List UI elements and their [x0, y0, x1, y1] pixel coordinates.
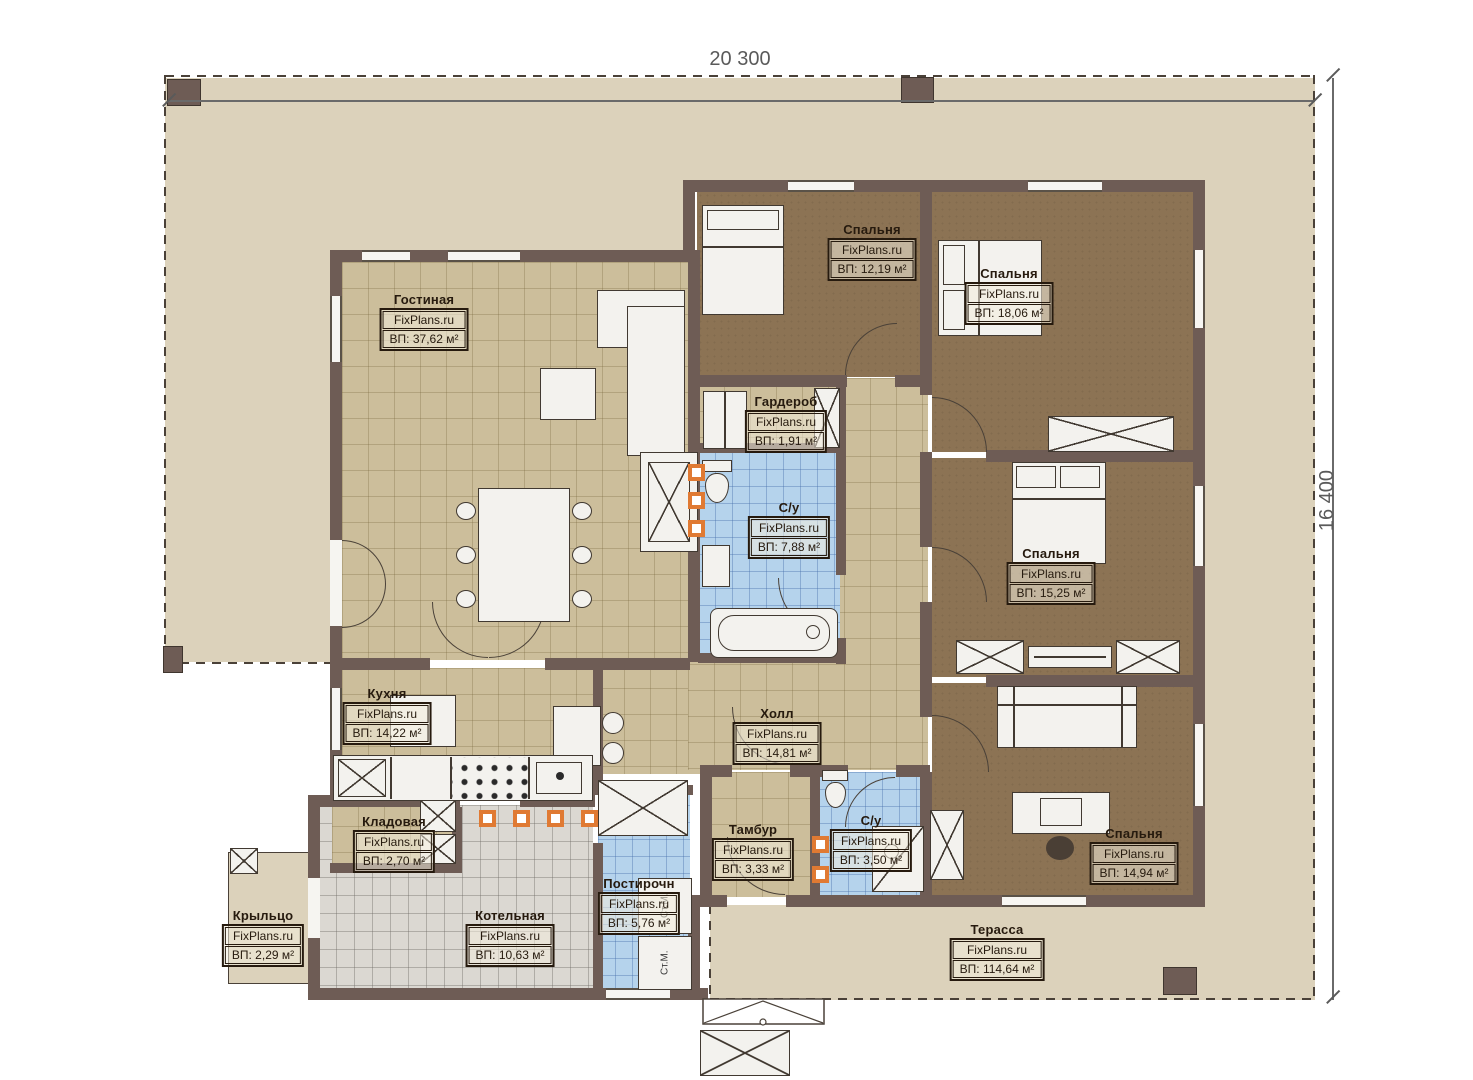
watermark: FixPlans.ru	[968, 285, 1051, 303]
wall-segment	[700, 765, 732, 777]
terrace-border	[165, 75, 1315, 77]
sofa-arm-line	[1013, 686, 1015, 748]
room-name: Гостиная	[394, 292, 454, 307]
room-name: Кухня	[368, 686, 407, 701]
room-name: Постирочн	[603, 876, 674, 891]
chair	[602, 712, 624, 734]
counter-divider	[390, 757, 392, 799]
bed-line	[702, 246, 784, 248]
room-info-box: FixPlans.ru ВП: 3,33 м²	[712, 838, 794, 881]
room-area: ВП: 14,81 м²	[736, 744, 819, 762]
stove	[452, 757, 528, 799]
room-label-spalnya-2: Спальня FixPlans.ru ВП: 18,06 м²	[965, 266, 1054, 325]
room-info-box: FixPlans.ru ВП: 14,94 м²	[1090, 842, 1179, 885]
sofa-back-line	[997, 704, 1137, 706]
wall-marker	[688, 492, 705, 509]
wall-segment	[700, 895, 727, 907]
terrace-area-above-living	[330, 180, 695, 252]
room-info-box: FixPlans.ru ВП: 14,22 м²	[343, 702, 432, 745]
entry-steps	[702, 998, 826, 1026]
bed-pillow	[943, 290, 965, 330]
sofa	[997, 686, 1137, 748]
room-name: Спальня	[843, 222, 901, 237]
washing-machine-label: Ст.М.	[639, 937, 691, 989]
terrace-post	[1163, 967, 1197, 995]
wall-marker	[513, 810, 530, 827]
porch-post	[230, 848, 258, 874]
room-label-kladovaya: Кладовая FixPlans.ru ВП: 2,70 м²	[353, 814, 435, 873]
room-area: ВП: 10,63 м²	[469, 946, 552, 964]
room-info-box: FixPlans.ru ВП: 18,06 м²	[965, 282, 1054, 325]
dimension-line-top	[168, 100, 1315, 102]
window	[448, 250, 520, 262]
bed-pillow	[1016, 466, 1056, 488]
room-area: ВП: 12,19 м²	[831, 260, 914, 278]
watermark: FixPlans.ru	[601, 895, 677, 913]
watermark: FixPlans.ru	[748, 413, 824, 431]
sofa-arm-line	[1121, 686, 1123, 748]
dimension-line-right	[1332, 78, 1334, 1000]
room-label-garderob: Гардероб FixPlans.ru ВП: 1,91 м²	[745, 394, 827, 453]
room-area: ВП: 15,25 м²	[1010, 584, 1093, 602]
room-name: Спальня	[1105, 826, 1163, 841]
terrace-border	[164, 662, 332, 664]
cabinet	[338, 759, 386, 797]
window	[330, 688, 342, 750]
wall-segment	[695, 375, 847, 387]
terrace-area-top	[165, 78, 1315, 180]
closet	[1116, 640, 1180, 674]
terrace-post	[163, 646, 183, 673]
room-label-holl: Холл FixPlans.ru ВП: 14,81 м²	[733, 706, 822, 765]
dimension-width-label: 20 300	[665, 48, 815, 71]
room-name: Спальня	[1022, 546, 1080, 561]
watermark: FixPlans.ru	[953, 941, 1042, 959]
chair	[456, 590, 476, 608]
room-label-su-2: С/у FixPlans.ru ВП: 3,50 м²	[830, 813, 912, 872]
window	[788, 180, 854, 192]
room-name: Крыльцо	[233, 908, 294, 923]
watermark: FixPlans.ru	[346, 705, 429, 723]
bed-pillow	[943, 245, 965, 285]
tv-unit-inner	[648, 462, 690, 542]
watermark: FixPlans.ru	[469, 927, 552, 945]
room-info-box: FixPlans.ru ВП: 114,64 м²	[950, 938, 1045, 981]
watermark: FixPlans.ru	[383, 311, 466, 329]
room-info-box: FixPlans.ru ВП: 2,29 м²	[222, 924, 304, 967]
room-info-box: FixPlans.ru ВП: 15,25 м²	[1007, 562, 1096, 605]
wall-marker	[688, 464, 705, 481]
window	[362, 250, 410, 262]
wall-segment	[895, 375, 932, 387]
bathtub-drain	[806, 625, 820, 639]
room-area: ВП: 1,91 м²	[748, 432, 824, 450]
washbasin	[702, 545, 730, 587]
wall-segment	[342, 658, 430, 670]
window	[1002, 895, 1086, 907]
room-area: ВП: 14,22 м²	[346, 724, 429, 742]
room-area: ВП: 2,29 м²	[225, 946, 301, 964]
dining-table	[478, 488, 570, 622]
watermark: FixPlans.ru	[833, 832, 909, 850]
room-name: Терасса	[971, 922, 1024, 937]
wall-segment	[545, 658, 690, 670]
wall-segment	[700, 777, 712, 895]
room-label-spalnya-4: Спальня FixPlans.ru ВП: 14,94 м²	[1090, 826, 1179, 885]
toilet	[702, 460, 732, 472]
watermark: FixPlans.ru	[1093, 845, 1176, 863]
wall-segment	[920, 452, 932, 547]
closet	[956, 640, 1024, 674]
room-info-box: FixPlans.ru ВП: 12,19 м²	[828, 238, 917, 281]
entry-canopy	[700, 1030, 790, 1076]
chair	[602, 742, 624, 764]
window	[1028, 180, 1102, 192]
chair	[456, 502, 476, 520]
room-label-tambur: Тамбур FixPlans.ru ВП: 3,33 м²	[712, 822, 794, 881]
watermark: FixPlans.ru	[356, 833, 432, 851]
terrace-area-left	[165, 180, 330, 662]
room-area: ВП: 37,62 м²	[383, 330, 466, 348]
counter-divider	[528, 757, 530, 799]
room-area: ВП: 2,70 м²	[356, 852, 432, 870]
bed-pillow	[1060, 466, 1100, 488]
window	[1193, 250, 1205, 328]
wall-marker	[812, 836, 829, 853]
door-opening	[330, 540, 342, 626]
watermark: FixPlans.ru	[831, 241, 914, 259]
room-area: ВП: 3,50 м²	[833, 851, 909, 869]
wall-marker	[479, 810, 496, 827]
room-label-postirochnaya: Постирочн FixPlans.ru ВП: 5,76 м²	[598, 876, 680, 935]
room-name: С/у	[861, 813, 882, 828]
terrace-border	[709, 905, 711, 1000]
window	[330, 296, 342, 362]
room-info-box: FixPlans.ru ВП: 5,76 м²	[598, 892, 680, 935]
room-label-spalnya-3: Спальня FixPlans.ru ВП: 15,25 м²	[1007, 546, 1096, 605]
terrace-border	[164, 75, 166, 665]
closet	[1048, 416, 1174, 452]
room-name: С/у	[779, 500, 800, 515]
terrace-area-right	[1200, 180, 1315, 905]
room-info-box: FixPlans.ru ВП: 10,63 м²	[466, 924, 555, 967]
room-info-box: FixPlans.ru ВП: 37,62 м²	[380, 308, 469, 351]
wall-marker	[812, 866, 829, 883]
room-name: Тамбур	[729, 822, 777, 837]
terrace-border	[1313, 75, 1315, 1000]
dimension-height-label: 16 400	[1316, 470, 1339, 531]
wall-segment	[920, 192, 932, 395]
dresser-line	[1034, 656, 1106, 658]
room-label-gostinaya: Гостиная FixPlans.ru ВП: 37,62 м²	[380, 292, 469, 351]
room-info-box: FixPlans.ru ВП: 2,70 м²	[353, 830, 435, 873]
bed-pillow	[707, 210, 779, 230]
room-label-kuhnya: Кухня FixPlans.ru ВП: 14,22 м²	[343, 686, 432, 745]
wall-segment	[920, 602, 932, 717]
window	[1193, 724, 1205, 806]
toilet	[822, 770, 848, 781]
room-label-spalnya-1: Спальня FixPlans.ru ВП: 12,19 м²	[828, 222, 917, 281]
room-label-terassa: Терасса FixPlans.ru ВП: 114,64 м²	[950, 922, 1045, 981]
room-name: Спальня	[980, 266, 1038, 281]
laundry-hatch	[598, 780, 688, 836]
room-name: Кладовая	[362, 814, 426, 829]
room-area: ВП: 114,64 м²	[953, 960, 1042, 978]
washing-machine: Ст.М.	[638, 936, 692, 990]
room-info-box: FixPlans.ru ВП: 14,81 м²	[733, 722, 822, 765]
wall-segment	[683, 180, 1205, 192]
room-name: Холл	[760, 706, 793, 721]
wall-marker	[547, 810, 564, 827]
room-area: ВП: 5,76 м²	[601, 914, 677, 932]
room-area: ВП: 14,94 м²	[1093, 864, 1176, 882]
wall-marker	[688, 520, 705, 537]
room-name: Гардероб	[754, 394, 817, 409]
watermark: FixPlans.ru	[1010, 565, 1093, 583]
floor-plan: 20 300 16 400	[0, 0, 1473, 1080]
wall-marker	[581, 810, 598, 827]
watermark: FixPlans.ru	[751, 519, 827, 537]
sink-faucet	[556, 772, 564, 780]
chair	[572, 590, 592, 608]
room-area: ВП: 3,33 м²	[715, 860, 791, 878]
room-label-krylco: Крыльцо FixPlans.ru ВП: 2,29 м²	[222, 908, 304, 967]
wall-segment	[786, 895, 926, 907]
watermark: FixPlans.ru	[736, 725, 819, 743]
chair	[456, 546, 476, 564]
bed-line	[1012, 498, 1106, 500]
room-area: ВП: 18,06 м²	[968, 304, 1051, 322]
sofa	[627, 306, 685, 456]
wardrobe-shelf-line	[724, 391, 726, 449]
chair	[572, 502, 592, 520]
room-label-su-1: С/у FixPlans.ru ВП: 7,88 м²	[748, 500, 830, 559]
chair	[572, 546, 592, 564]
room-info-box: FixPlans.ru ВП: 1,91 м²	[745, 410, 827, 453]
room-label-kotelnaya: Котельная FixPlans.ru ВП: 10,63 м²	[466, 908, 555, 967]
desk-chair	[1046, 836, 1074, 860]
desk-monitor	[1040, 798, 1082, 826]
window	[1193, 486, 1205, 566]
room-area: ВП: 7,88 м²	[751, 538, 827, 556]
door-opening	[308, 878, 320, 938]
watermark: FixPlans.ru	[715, 841, 791, 859]
room-info-box: FixPlans.ru ВП: 3,50 м²	[830, 829, 912, 872]
coffee-table	[540, 368, 596, 420]
room-name: Котельная	[475, 908, 545, 923]
room-info-box: FixPlans.ru ВП: 7,88 м²	[748, 516, 830, 559]
closet	[930, 810, 964, 880]
terrace-post	[167, 79, 201, 106]
watermark: FixPlans.ru	[225, 927, 301, 945]
